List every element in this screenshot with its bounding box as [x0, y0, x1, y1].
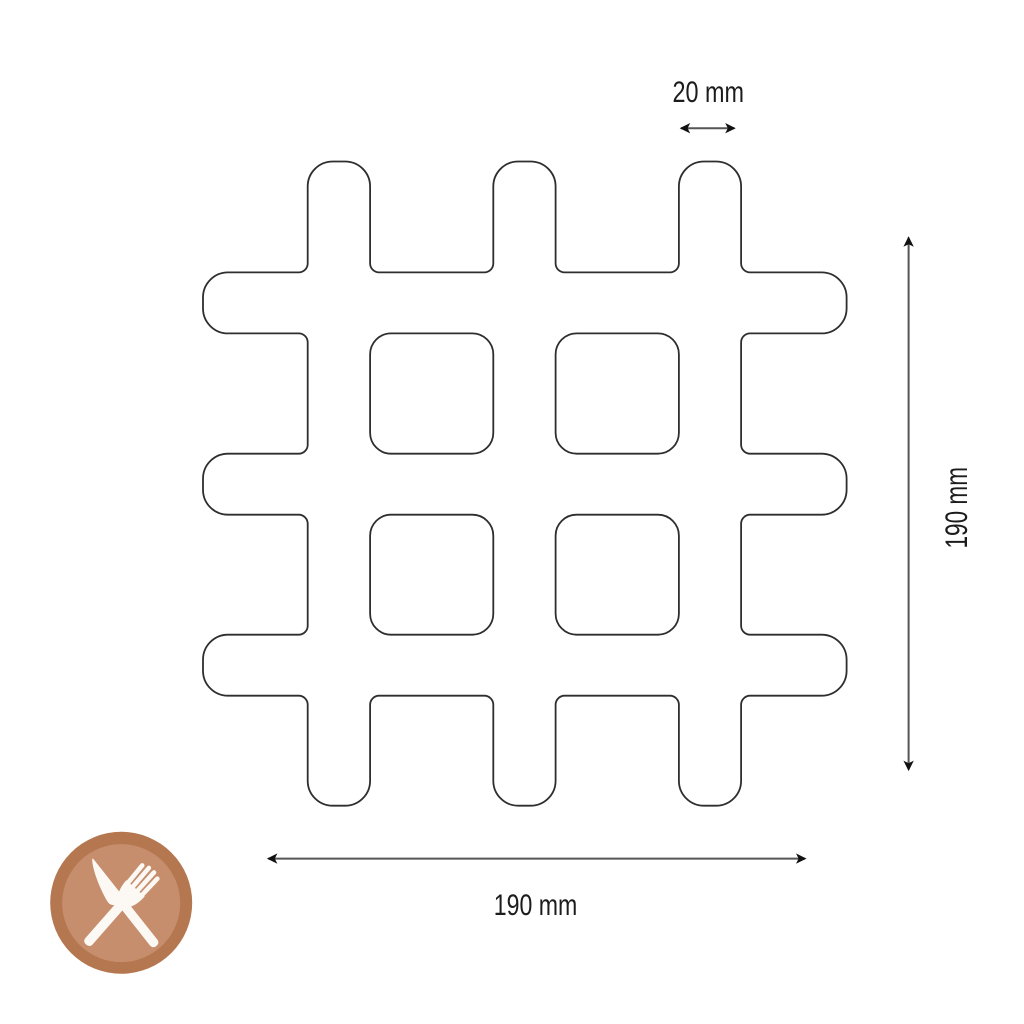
svg-text:190 mm: 190 mm [494, 889, 578, 922]
svg-text:190 mm: 190 mm [938, 467, 974, 549]
svg-text:20 mm: 20 mm [673, 76, 745, 109]
